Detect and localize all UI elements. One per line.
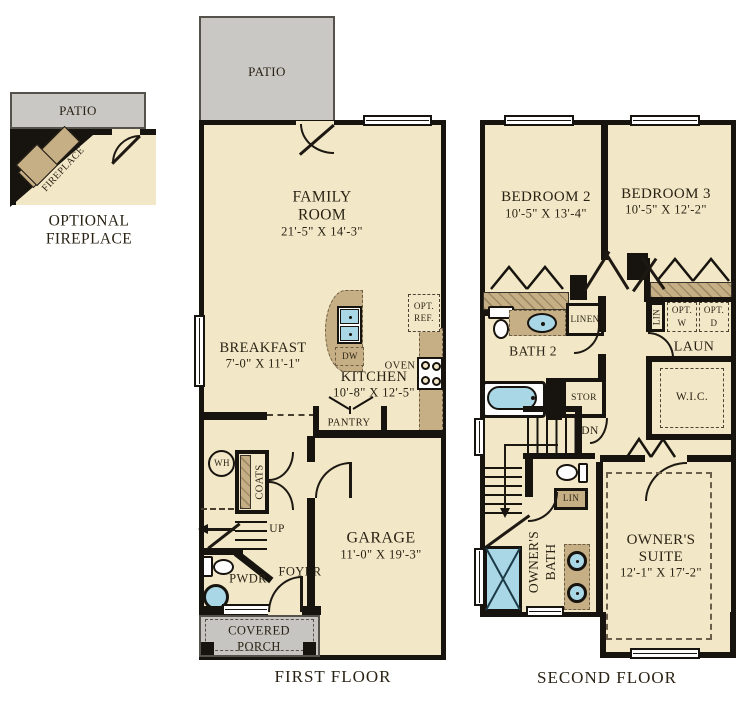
suite-window	[630, 648, 700, 659]
bath2-sink	[527, 313, 557, 333]
laun-wall-left-upper	[646, 298, 652, 332]
bedroom3-dims: 10'-5" X 12'-2"	[625, 203, 707, 217]
suite-bath-wall	[596, 462, 603, 612]
opt-d-label-1: OPT.	[704, 306, 724, 316]
obath-sink-1	[567, 551, 587, 571]
bedroom3-bifold-doors	[656, 256, 730, 282]
family-room-label-2: ROOM	[298, 208, 346, 225]
bedroom3-label: BEDROOM 3	[621, 186, 711, 202]
sf-stair-wall-top	[523, 406, 582, 412]
sf-stair-arrow-hline	[505, 444, 558, 446]
suite-label-1: OWNER'S	[627, 532, 696, 548]
island-sink-basin-1	[340, 309, 359, 324]
family-room-dims: 21'-5" X 14'-3"	[281, 225, 363, 239]
dw-label: DW	[342, 352, 358, 362]
opt-w-label-2: W	[678, 319, 687, 329]
pwdr-label: PWDR	[229, 572, 267, 586]
owners-bath-label-2: BATH	[543, 544, 558, 581]
pantry-doors	[328, 396, 374, 410]
bedroom3-window	[630, 115, 700, 126]
second-floor-caption: SECOND FLOOR	[537, 669, 677, 687]
ff-family-window	[363, 115, 432, 126]
sf-stairs-upper	[527, 418, 578, 453]
cooktop	[417, 357, 443, 390]
shower-x-pattern	[484, 546, 522, 612]
coats-shelf	[240, 455, 251, 509]
family-room-label-1: FAMILY	[292, 190, 351, 207]
bedroom2-bifold-doors	[490, 264, 564, 290]
bath2-label: BATH 2	[509, 345, 557, 360]
floor-plan: PATIO FIREPLACE OPTIONAL FIREPLACE PATIO…	[0, 0, 741, 713]
owners-bath-label-1: OWNER'S	[526, 531, 541, 593]
sf-stair-window	[474, 418, 485, 456]
obath-window-bottom	[526, 606, 564, 617]
breakfast-label: BREAKFAST	[219, 341, 306, 357]
garage-dims: 11'-0" X 19'-3"	[340, 548, 421, 562]
kitchen-label: KITCHEN	[341, 370, 407, 386]
bath2-tub-drain	[531, 396, 535, 400]
ff-stairs	[235, 512, 267, 550]
laun-label: LAUN	[674, 339, 714, 354]
bedroom-divider-wall	[601, 123, 608, 260]
detail-wall-top-right	[140, 129, 156, 135]
oven-label: OVEN	[385, 360, 416, 371]
detail-patio-label: PATIO	[59, 104, 97, 118]
wic-label: W.I.C.	[676, 391, 708, 403]
garage-door-leaf	[349, 462, 352, 498]
obath-hall-wall	[525, 459, 533, 497]
ff-cased-opening	[267, 414, 315, 416]
garage-top-wall	[313, 430, 446, 438]
dn-label: DN	[581, 425, 598, 437]
lin-upper-label: LIN	[651, 309, 662, 325]
porch-post-left	[201, 642, 214, 655]
sf-ext-wall-right	[730, 612, 736, 658]
pwdr-toilet-tank	[202, 556, 213, 577]
pantry-label: PANTRY	[328, 417, 371, 428]
bedroom2-window	[504, 115, 574, 126]
suite-dims: 12'-1" X 17'-2"	[620, 566, 702, 580]
stor-label: STOR	[571, 393, 597, 403]
ff-mid-wall	[199, 412, 267, 420]
suite-label-2: SUITE	[639, 549, 684, 565]
island-sink-basin-2	[340, 326, 359, 341]
sf-stair-arrow-vline	[504, 444, 506, 510]
porch-post-right	[303, 642, 316, 655]
suite-wall-top-left	[600, 455, 645, 462]
ff-stair-dash	[201, 508, 234, 510]
bedroom2-dims: 10'-5" X 13'-4"	[505, 207, 587, 221]
first-floor-caption: FIRST FLOOR	[275, 668, 392, 686]
obath-window-left	[474, 548, 485, 606]
porch-label-1: COVERED	[228, 624, 290, 638]
detail-caption-line2: FIREPLACE	[46, 232, 132, 249]
up-label: UP	[269, 523, 285, 535]
obath-toilet-tank	[578, 463, 588, 483]
wh-label: WH	[214, 459, 230, 469]
coats-label: COATS	[253, 464, 266, 499]
opt-ref-label-1: OPT.	[414, 302, 434, 312]
front-door-leaf	[300, 576, 303, 612]
suite-wall-top-right	[687, 455, 736, 462]
pantry-door-stem	[349, 406, 351, 414]
garage-label: GARAGE	[346, 529, 415, 546]
opt-d-label-2: D	[711, 319, 718, 329]
opt-w-label-1: OPT.	[672, 306, 692, 316]
bedroom2-label: BEDROOM 2	[501, 189, 591, 205]
ff-patio-label: PATIO	[248, 65, 286, 79]
linen-label: LINEN	[571, 315, 600, 325]
obath-sink-2	[567, 583, 587, 603]
porch-label-2: PORCH	[237, 640, 281, 654]
opt-ref-label-2: REF.	[414, 314, 434, 324]
sf-stair-wall-mid	[523, 453, 595, 459]
sf-stair-arrow-head	[500, 508, 510, 518]
laun-bottom-wall	[646, 356, 736, 362]
lin-lower-label: LIN	[563, 494, 579, 504]
stor-wall-left	[546, 378, 562, 420]
ff-breakfast-window	[194, 315, 205, 387]
ff-stair-arrow-head	[198, 524, 208, 534]
bath2-toilet-bowl	[493, 319, 509, 339]
detail-caption-line1: OPTIONAL	[49, 214, 130, 231]
garage-wall-lower	[307, 498, 315, 608]
breakfast-dims: 7'-0" X 11'-1"	[226, 357, 301, 371]
obath-toilet-bowl	[556, 464, 578, 481]
garage-wall-upper	[307, 436, 315, 462]
owners-bath-label: OWNER'SBATH	[526, 531, 560, 593]
wic-wall-left	[646, 362, 652, 440]
